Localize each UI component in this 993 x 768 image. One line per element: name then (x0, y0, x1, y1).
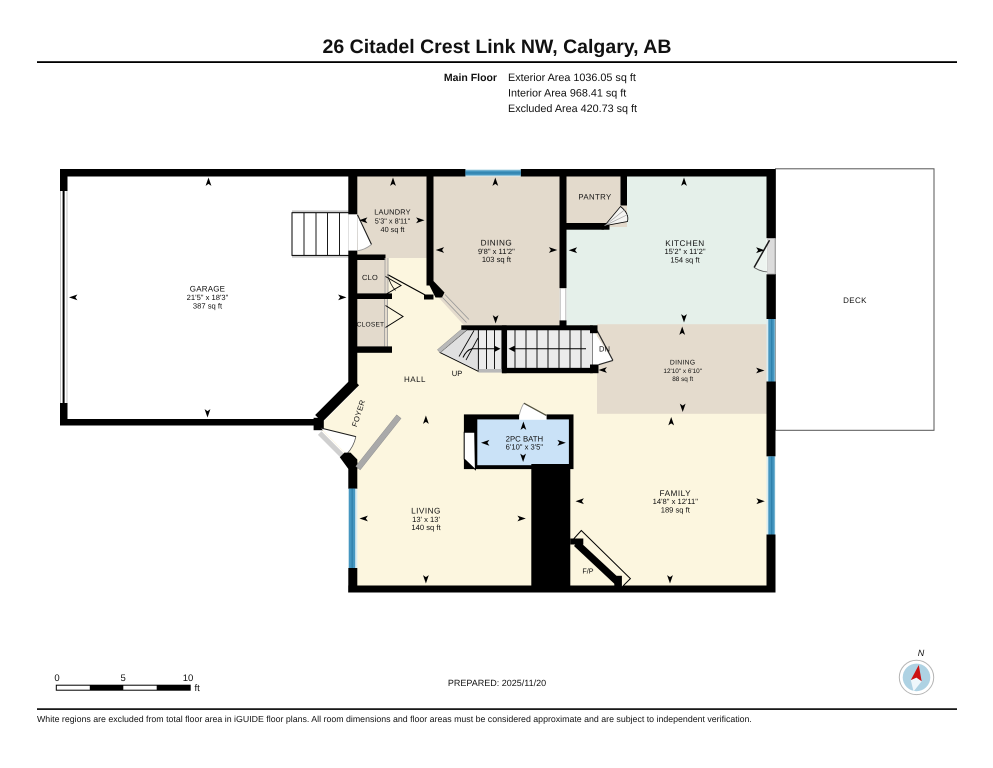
svg-text:UP: UP (452, 369, 463, 378)
svg-text:LAUNDRY: LAUNDRY (374, 208, 411, 217)
svg-text:CLO: CLO (362, 273, 378, 282)
svg-text:12'10" x 6'10": 12'10" x 6'10" (663, 368, 702, 375)
svg-text:Exterior Area 1036.05 sq ft: Exterior Area 1036.05 sq ft (508, 72, 636, 84)
svg-text:N: N (918, 648, 925, 658)
svg-text:CLOSET: CLOSET (357, 322, 385, 329)
svg-text:DECK: DECK (843, 296, 867, 305)
svg-text:PANTRY: PANTRY (578, 193, 612, 202)
svg-text:DN: DN (599, 345, 610, 354)
svg-text:Excluded Area 420.73 sq ft: Excluded Area 420.73 sq ft (508, 103, 637, 115)
svg-text:26 Citadel Crest Link NW, Calg: 26 Citadel Crest Link NW, Calgary, AB (323, 36, 672, 58)
svg-text:10: 10 (183, 673, 194, 684)
svg-text:Main Floor: Main Floor (444, 72, 497, 84)
svg-text:HALL: HALL (404, 375, 426, 384)
svg-text:5: 5 (121, 673, 126, 684)
svg-text:PREPARED: 2025/11/20: PREPARED: 2025/11/20 (448, 678, 546, 688)
svg-text:103 sq ft: 103 sq ft (482, 255, 512, 264)
svg-text:88 sq ft: 88 sq ft (672, 376, 693, 383)
svg-text:0: 0 (54, 673, 59, 684)
svg-text:154 sq ft: 154 sq ft (670, 255, 700, 264)
svg-text:Interior Area 968.41 sq ft: Interior Area 968.41 sq ft (508, 88, 626, 100)
svg-text:ft: ft (195, 683, 201, 694)
svg-text:DINING: DINING (670, 360, 696, 367)
svg-text:White regions are excluded fro: White regions are excluded from total fl… (37, 714, 752, 724)
svg-text:6'10" x 3'5": 6'10" x 3'5" (506, 443, 544, 452)
svg-text:189 sq ft: 189 sq ft (661, 506, 691, 515)
svg-text:40 sq ft: 40 sq ft (381, 225, 405, 234)
svg-text:140 sq ft: 140 sq ft (411, 523, 441, 532)
svg-text:F/P: F/P (582, 567, 593, 576)
svg-text:387 sq ft: 387 sq ft (193, 302, 223, 311)
